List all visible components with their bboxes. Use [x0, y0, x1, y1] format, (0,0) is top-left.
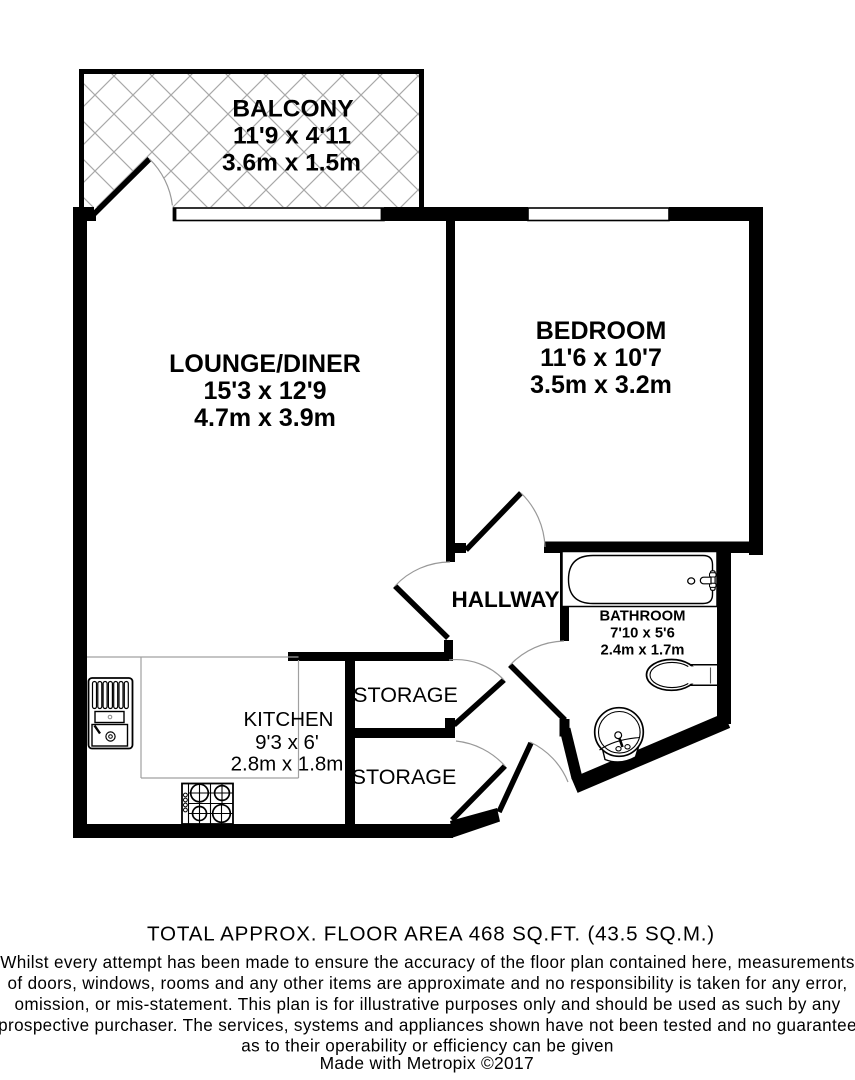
svg-text:TOTAL APPROX. FLOOR AREA 468 S: TOTAL APPROX. FLOOR AREA 468 SQ.FT. (43.… [147, 923, 715, 946]
svg-text:11'9 x 4'11: 11'9 x 4'11 [233, 123, 351, 150]
svg-text:BEDROOM: BEDROOM [536, 317, 667, 345]
svg-text:9'3 x 6': 9'3 x 6' [255, 731, 319, 754]
svg-text:BATHROOM: BATHROOM [599, 609, 685, 625]
svg-text:2.4m x 1.7m: 2.4m x 1.7m [601, 643, 685, 659]
svg-text:Made with Metropix ©2017: Made with Metropix ©2017 [320, 1053, 534, 1073]
svg-text:HALLWAY: HALLWAY [452, 587, 560, 612]
svg-text:prospective purchaser. The ser: prospective purchaser. The services, sys… [0, 1016, 855, 1035]
svg-text:Whilst every attempt has been: Whilst every attempt has been made to en… [0, 953, 855, 972]
svg-text:2.8m x 1.8m: 2.8m x 1.8m [231, 753, 344, 776]
svg-text:STORAGE: STORAGE [353, 683, 458, 707]
svg-text:3.5m x 3.2m: 3.5m x 3.2m [530, 371, 672, 399]
svg-text:STORAGE: STORAGE [352, 765, 457, 789]
svg-text:of doors, windows, rooms and a: of doors, windows, rooms and any other i… [8, 974, 848, 993]
svg-text:7'10 x 5'6: 7'10 x 5'6 [610, 626, 675, 642]
svg-text:4.7m x 3.9m: 4.7m x 3.9m [194, 404, 336, 432]
svg-text:omission, or mis-statement. Th: omission, or mis-statement. This plan is… [15, 995, 841, 1014]
svg-text:BALCONY: BALCONY [232, 96, 353, 123]
svg-text:KITCHEN: KITCHEN [244, 708, 334, 731]
svg-text:LOUNGE/DINER: LOUNGE/DINER [169, 350, 361, 378]
svg-text:15'3 x 12'9: 15'3 x 12'9 [203, 377, 326, 405]
svg-text:11'6 x 10'7: 11'6 x 10'7 [540, 344, 662, 372]
svg-text:3.6m x 1.5m: 3.6m x 1.5m [222, 150, 361, 177]
